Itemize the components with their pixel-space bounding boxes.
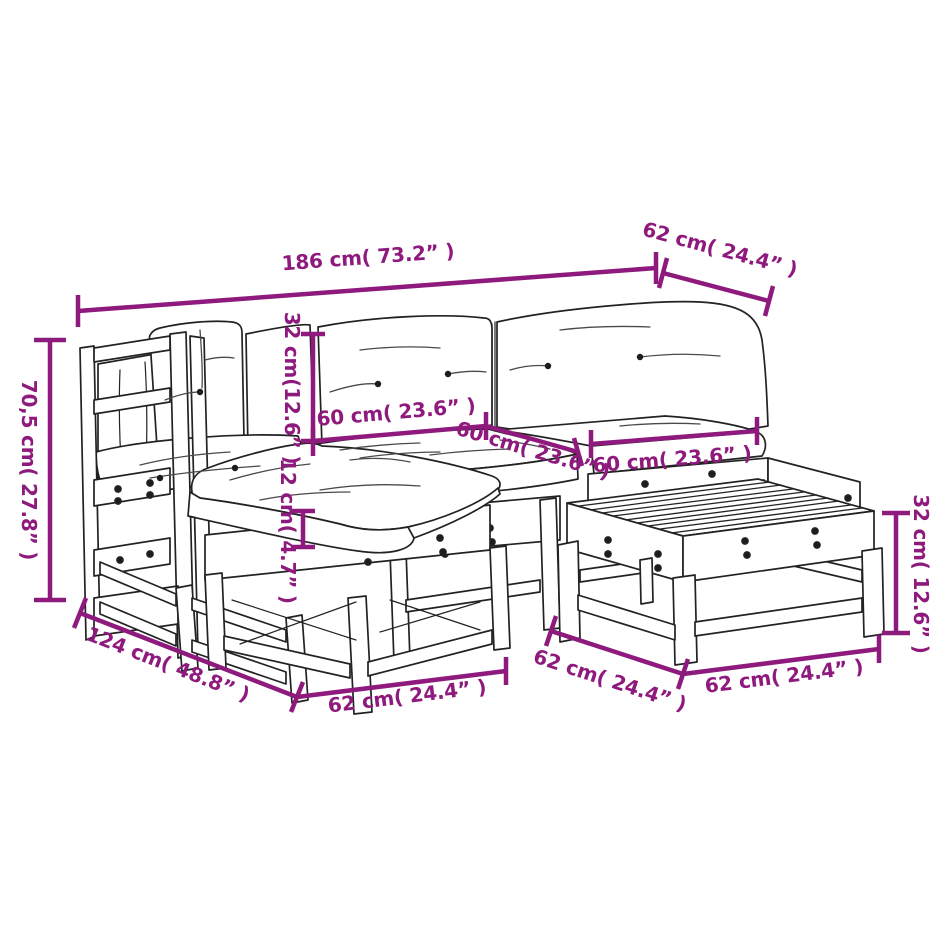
dim-label-table-height: 32 cm( 12.6” ) (911, 494, 931, 653)
furniture-line-art (0, 0, 947, 947)
dim-label-back-height: 70,5 cm( 27.8” ) (19, 380, 39, 561)
coffee-table (558, 479, 884, 665)
dim-label-back-cushion-height: 32 cm(12.6” ) (282, 312, 302, 465)
dim-label-cushion-thickness: 12 cm( 4.7” ) (278, 458, 298, 604)
dim-line-table-height (882, 513, 910, 633)
dimension-diagram: 186 cm( 73.2” ) 62 cm( 24.4” ) 70,5 cm( … (0, 0, 947, 947)
